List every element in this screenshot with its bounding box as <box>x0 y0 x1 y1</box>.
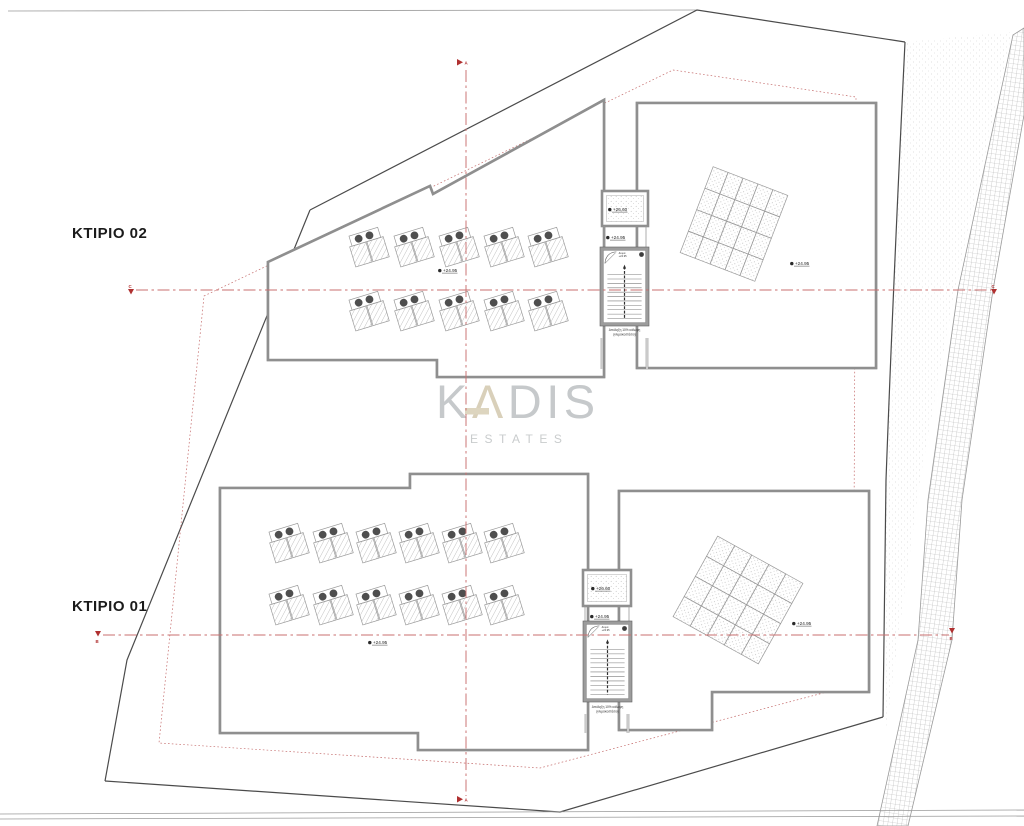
svg-text:+24.95: +24.95 <box>795 261 810 266</box>
svg-text:C: C <box>992 284 996 289</box>
site-plan-page: KΛDIS ESTATES <box>0 0 1024 826</box>
level-annotation: +24.95 <box>606 235 626 240</box>
svg-text:Δώμα: Δώμα <box>602 625 609 629</box>
svg-text:A: A <box>465 798 469 803</box>
svg-text:+24.95: +24.95 <box>373 640 388 645</box>
section-marker-b-left: B <box>95 631 101 644</box>
svg-text:(κλιμακοστάσιο): (κλιμακοστάσιο) <box>596 709 619 713</box>
svg-text:+24.95: +24.95 <box>611 235 626 240</box>
svg-text:B: B <box>96 639 99 644</box>
building-01-label: ΚΤΙΡΙΟ 01 <box>72 598 147 615</box>
watermark-subtitle: ESTATES <box>470 432 568 446</box>
site-plan-drawing: KΛDIS ESTATES <box>0 0 1024 826</box>
svg-text:Δώμα: Δώμα <box>619 251 626 255</box>
svg-text:+26.60: +26.60 <box>613 207 628 212</box>
svg-text:C: C <box>129 284 133 289</box>
level-annotation: +24.95 <box>590 614 610 619</box>
svg-text:+24.95: +24.95 <box>797 621 812 626</box>
svg-text:+26.60: +26.60 <box>596 586 611 591</box>
svg-text:Απόληξη 10% κάλυψη: Απόληξη 10% κάλυψη <box>592 705 624 709</box>
building-02-label: ΚΤΙΡΙΟ 02 <box>72 225 147 242</box>
watermark-a-bar <box>465 408 489 415</box>
svg-text:+24.95: +24.95 <box>619 254 628 258</box>
svg-text:Απόληξη 10% κάλυψη: Απόληξη 10% κάλυψη <box>609 328 641 332</box>
svg-text:B: B <box>950 636 953 641</box>
road-strip <box>877 28 1024 826</box>
svg-text:+24.95: +24.95 <box>443 268 458 273</box>
section-marker-c-left: C <box>128 284 134 295</box>
section-marker-a-top: A <box>457 59 469 66</box>
kadis-watermark: KΛDIS ESTATES <box>436 375 600 446</box>
section-marker-a-bottom: A <box>457 796 469 803</box>
stair-core: Δώμα+24.95Απόληξη 10% κάλυψη(κλιμακοστάσ… <box>600 247 649 336</box>
svg-text:(κλιμακοστάσιο): (κλιμακοστάσιο) <box>613 332 636 336</box>
svg-text:+24.95: +24.95 <box>595 614 610 619</box>
svg-text:A: A <box>465 61 469 66</box>
svg-text:+24.95: +24.95 <box>602 628 611 632</box>
watermark-brand: KΛDIS <box>436 375 600 428</box>
